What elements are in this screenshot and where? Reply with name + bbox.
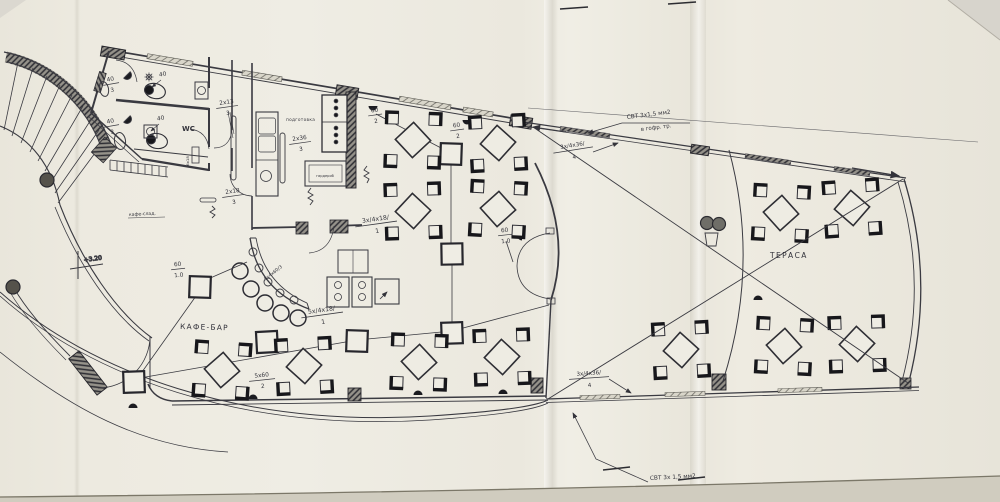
svg-text:3: 3 xyxy=(299,147,304,153)
registration-marks xyxy=(560,2,705,480)
wall-lamp-icon xyxy=(124,72,134,82)
circuit-label-3x4x36-bottom: 3х/4х36/4 xyxy=(569,370,610,391)
wc-label: WC xyxy=(182,125,195,133)
table-group xyxy=(187,335,258,406)
cable-note-top: СВТ 3х1,5 мм2 в гофр. тр. xyxy=(588,110,690,133)
table-group xyxy=(749,311,819,381)
terrace-crossing-lines xyxy=(533,127,908,399)
svg-text:2: 2 xyxy=(456,134,461,140)
circuit-label-40-d: 40 xyxy=(157,115,166,122)
level-mark-label: +3.20 xyxy=(83,254,102,264)
circuit-label-2x36: 2х363 xyxy=(288,135,312,155)
svg-text:3х/4х36/: 3х/4х36/ xyxy=(560,141,585,151)
terrace-lamp xyxy=(701,217,726,247)
svg-text:60: 60 xyxy=(501,228,509,235)
wall-lamp-icon xyxy=(249,395,258,400)
table-group xyxy=(379,106,448,175)
luminaire-tube xyxy=(280,133,285,183)
circuit-label-60-10-a: 601.0 xyxy=(497,227,513,245)
wall-lamp-icon xyxy=(124,116,134,126)
table-group xyxy=(463,174,533,244)
table-group xyxy=(468,323,537,392)
svg-text:1.0: 1.0 xyxy=(501,238,511,245)
svg-text:2: 2 xyxy=(374,119,379,125)
svg-text:3: 3 xyxy=(232,200,237,206)
cafe-bar-label: КАФЕ-БАР xyxy=(180,322,229,332)
svg-text:3: 3 xyxy=(226,111,231,117)
svg-text:5х/4х18/: 5х/4х18/ xyxy=(308,305,337,316)
door-leaf xyxy=(517,266,550,299)
svg-text:2: 2 xyxy=(261,384,266,390)
wall-lamp-icon xyxy=(754,296,763,301)
svg-text:60: 60 xyxy=(453,123,461,130)
paper-edges xyxy=(0,0,1000,502)
fan-icon xyxy=(145,73,154,82)
svg-text:5х60: 5х60 xyxy=(254,372,269,380)
circuit-label-60-2-b: 602 xyxy=(449,122,465,141)
circuit-label-2x13: 2х133 xyxy=(215,99,239,119)
circuit-label-40-c: 40 xyxy=(159,71,168,78)
heater-squiggle xyxy=(364,166,369,183)
wall-lamp-icon xyxy=(499,390,508,395)
luminaire-tube xyxy=(200,198,216,202)
svg-text:40: 40 xyxy=(106,76,115,83)
svg-text:1: 1 xyxy=(375,228,380,235)
svg-text:3х/4х18/: 3х/4х18/ xyxy=(362,214,391,225)
staircase xyxy=(0,52,152,341)
svg-text:2х18: 2х18 xyxy=(225,188,240,196)
table-group xyxy=(746,178,816,248)
cable-note-top-line1: СВТ 3х1,5 мм2 xyxy=(627,110,672,121)
prep-kitchen xyxy=(228,92,369,253)
svg-text:4: 4 xyxy=(572,155,577,162)
svg-text:40: 40 xyxy=(106,118,115,125)
circuit-label-5x60: 5х602 xyxy=(248,372,276,392)
duct-size-label: 6х18 xyxy=(185,156,190,166)
svg-text:3: 3 xyxy=(110,130,115,137)
svg-text:60: 60 xyxy=(371,108,379,115)
cable-note-bottom-line1: СВТ 3х 1,5 мм2 xyxy=(650,474,696,482)
heater-squiggle xyxy=(210,206,215,218)
dining-east-wall xyxy=(517,163,559,398)
svg-text:3х/4х36/: 3х/4х36/ xyxy=(576,370,601,378)
svg-text:1: 1 xyxy=(321,319,326,326)
table-group xyxy=(646,315,716,385)
circuit-label-2x18: 2х183 xyxy=(221,188,245,208)
svg-text:2х36: 2х36 xyxy=(292,135,307,143)
table-group xyxy=(379,177,448,246)
table-group xyxy=(385,328,454,397)
stove xyxy=(322,95,347,152)
terrace-label: ТЕРАСА xyxy=(769,251,808,260)
cloak-note-label: кафе-слад. xyxy=(129,211,156,218)
svg-text:60: 60 xyxy=(174,262,182,269)
wardrobe-label: гардероб xyxy=(316,174,335,178)
cable-note-top-line2: в гофр. тр. xyxy=(641,123,673,133)
wall-lamp-icon xyxy=(129,404,138,409)
terrace-top-railing xyxy=(523,122,906,182)
table-group xyxy=(269,331,339,401)
svg-text:1.0: 1.0 xyxy=(174,272,184,279)
wall-lamp-icon xyxy=(414,391,423,396)
bar-equipment xyxy=(327,250,399,307)
cable-note-bottom: СВТ 3х 1,5 мм2 в гофр. тр. xyxy=(573,413,696,494)
floorplan-drawing: КАФЕ-БАР ТЕРАСА WC подготовка гардероб к… xyxy=(0,0,1000,502)
svg-text:4: 4 xyxy=(588,383,592,389)
table-group xyxy=(823,310,892,379)
table-group xyxy=(817,173,888,244)
prep-label: подготовка xyxy=(286,118,315,123)
table-group xyxy=(463,108,533,178)
toilet xyxy=(143,81,167,101)
sink xyxy=(195,82,208,99)
circuit-label-3x4x36-top: 3х/4х36/4 xyxy=(552,140,594,164)
structural-grid-lines xyxy=(140,114,549,378)
heater-squiggle xyxy=(308,188,313,205)
level-mark: +3.20 xyxy=(70,251,103,279)
floorplan-photo: КАФЕ-БАР ТЕРАСА WC подготовка гардероб к… xyxy=(0,0,1000,502)
svg-text:3: 3 xyxy=(110,88,115,95)
circuit-label-60-10-b: 601.0 xyxy=(170,261,186,279)
terrace-east-edge xyxy=(898,179,921,389)
